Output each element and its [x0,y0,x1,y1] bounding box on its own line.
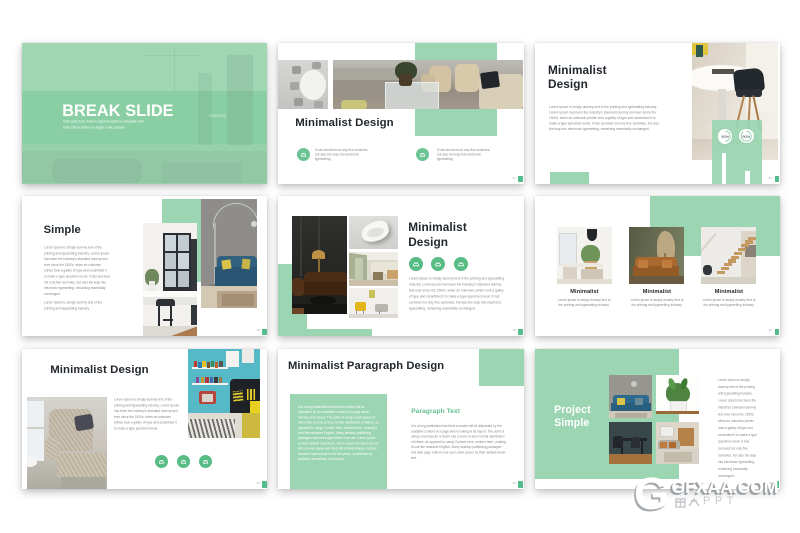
svg-text:90%: 90% [743,134,751,139]
svg-text:50%: 50% [721,134,729,139]
